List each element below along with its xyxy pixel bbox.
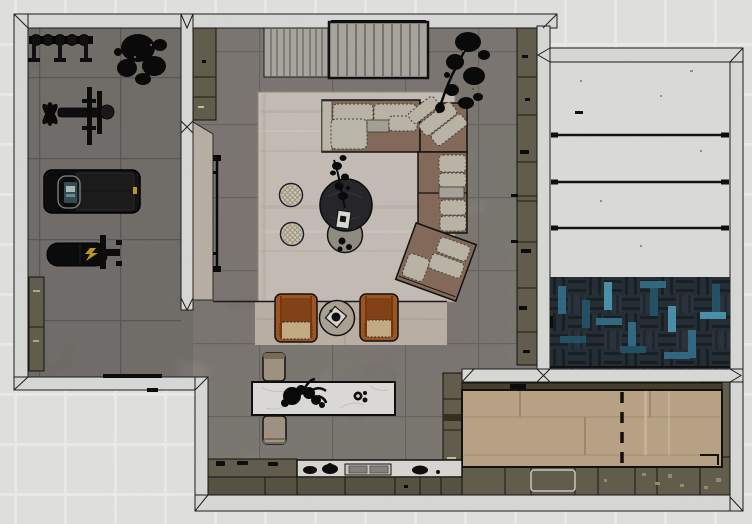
render-grain-overlay [0,0,752,524]
floor-plan-render [0,0,752,524]
